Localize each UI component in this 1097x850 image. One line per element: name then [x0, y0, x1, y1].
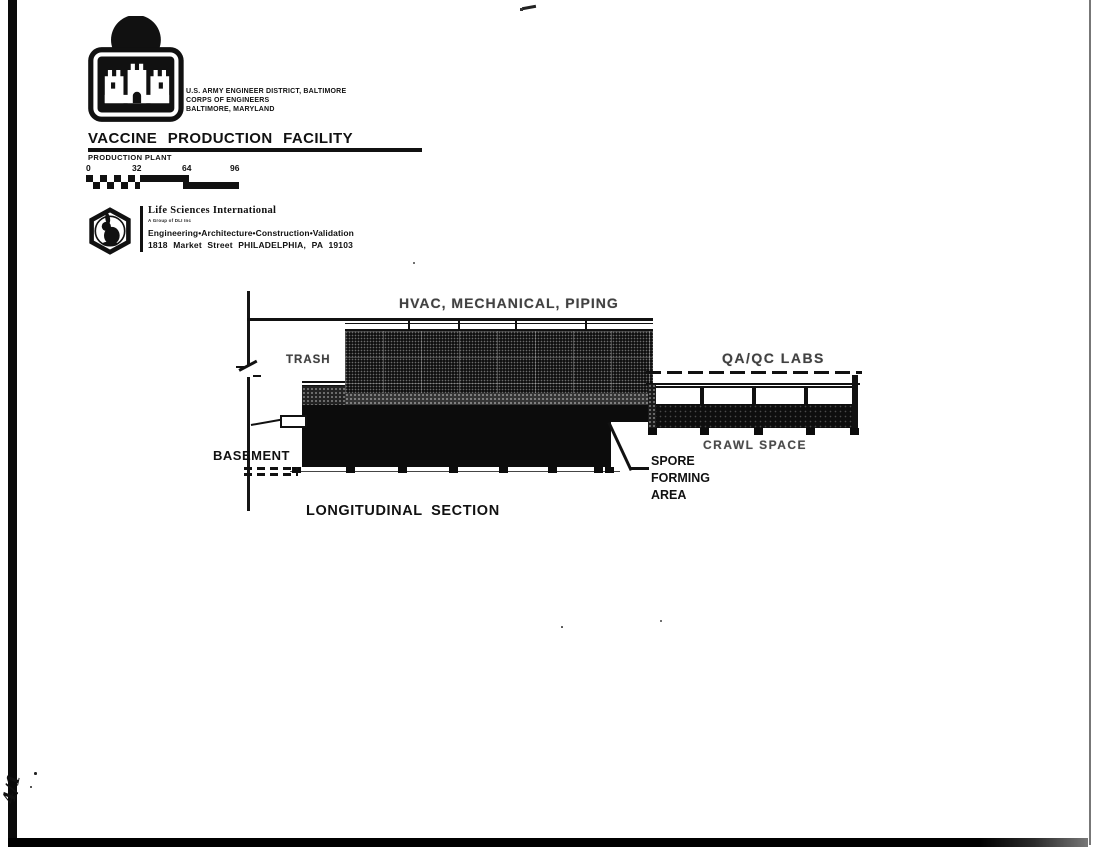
label-crawl-space: CRAWL SPACE — [703, 438, 807, 452]
qaqc-left-column — [648, 384, 656, 428]
scale-bar-upper-segment — [140, 175, 189, 182]
title-underline — [88, 148, 422, 152]
firm-small-print: A Group of DLI Inc — [148, 218, 191, 223]
page-border-left — [8, 0, 17, 847]
firm-address: 1818 Market Street PHILADELPHIA, PA 1910… — [148, 240, 353, 250]
page-border-right — [1089, 0, 1091, 845]
scale-bar-checker-segment — [86, 175, 140, 189]
drawing-title: LONGITUDINAL SECTION — [306, 503, 500, 519]
trash-enclosure — [302, 381, 345, 405]
agency-line-1: U.S. ARMY ENGINEER DISTRICT, BALTIMORE — [186, 87, 416, 96]
qaqc-column — [752, 386, 756, 404]
agency-line-2: CORPS OF ENGINEERS — [186, 96, 416, 105]
agency-line-3: BALTIMORE, MARYLAND — [186, 105, 416, 114]
basement-dashed-line — [244, 467, 298, 470]
agency-address: U.S. ARMY ENGINEER DISTRICT, BALTIMORE C… — [186, 87, 416, 114]
label-spore-line3: AREA — [651, 487, 710, 504]
footing — [648, 428, 657, 435]
lsi-rabbit-hexagon-logo-icon — [87, 207, 133, 255]
label-spore-forming-area: SPORE FORMING AREA — [651, 453, 710, 504]
ink-speck — [660, 620, 662, 622]
scan-tick-mark — [520, 8, 523, 11]
qaqc-dashed-roof-line — [646, 371, 862, 374]
ink-speck — [561, 626, 563, 628]
footing — [548, 467, 557, 473]
label-hvac: HVAC, MECHANICAL, PIPING — [399, 295, 619, 311]
side-detail-box — [280, 415, 307, 428]
footing — [806, 428, 815, 435]
footing — [700, 428, 709, 435]
scale-tick-96: 96 — [230, 163, 239, 173]
building-roof-band — [345, 318, 653, 331]
firm-services: Engineering•Architecture•Construction•Va… — [148, 228, 354, 238]
project-title: VACCINE PRODUCTION FACILITY — [88, 130, 353, 147]
footing — [605, 467, 614, 473]
firm-name: Life Sciences International — [148, 205, 276, 216]
qaqc-floor-band — [648, 404, 858, 428]
footing — [449, 467, 458, 473]
footing — [850, 428, 859, 435]
footing — [398, 467, 407, 473]
qaqc-ceiling-line — [646, 383, 860, 385]
qaqc-right-column — [852, 375, 858, 428]
spore-leader-line — [630, 467, 649, 470]
scale-tick-0: 0 — [86, 163, 91, 173]
line-break-mark — [253, 375, 261, 377]
building-lower-band — [345, 393, 653, 405]
ink-speck — [34, 772, 37, 775]
ink-speck — [413, 262, 415, 264]
left-roof-line — [247, 318, 347, 321]
drawing-sheet: U.S. ARMY ENGINEER DISTRICT, BALTIMORE C… — [0, 0, 1097, 850]
graphic-scale-bar: 0 32 64 96 — [86, 163, 256, 193]
footing — [346, 467, 355, 473]
spore-leader-line — [608, 422, 633, 471]
section-cut-line — [247, 291, 250, 511]
roof-divider — [408, 321, 410, 329]
basement-mass — [302, 405, 611, 467]
roof-divider — [585, 321, 587, 329]
building-hatched-body — [345, 331, 653, 393]
label-qaqc-labs: QA/QC LABS — [722, 350, 825, 366]
page-border-bottom — [8, 838, 1088, 847]
scale-tick-64: 64 — [182, 163, 191, 173]
side-detail-leader-line — [251, 419, 282, 426]
label-trash: TRASH — [286, 354, 331, 366]
firm-block-divider — [140, 206, 143, 252]
roof-divider — [515, 321, 517, 329]
basement-step — [611, 405, 653, 422]
label-spore-line1: SPORE — [651, 453, 710, 470]
scan-tick-mark — [522, 5, 536, 10]
footing — [499, 467, 508, 473]
scale-tick-32: 32 — [132, 163, 141, 173]
qaqc-column — [700, 386, 704, 404]
scale-bar-lower-segment — [183, 182, 239, 189]
basement-dashed-line — [244, 473, 298, 476]
footing — [594, 467, 603, 473]
ink-speck — [30, 786, 32, 788]
qaqc-column — [804, 386, 808, 404]
project-subtitle: PRODUCTION PLANT — [88, 153, 172, 162]
label-spore-line2: FORMING — [651, 470, 710, 487]
label-basement: BASEMENT — [213, 448, 290, 463]
roof-divider — [458, 321, 460, 329]
usace-castle-logo-icon — [88, 16, 188, 126]
footing — [754, 428, 763, 435]
